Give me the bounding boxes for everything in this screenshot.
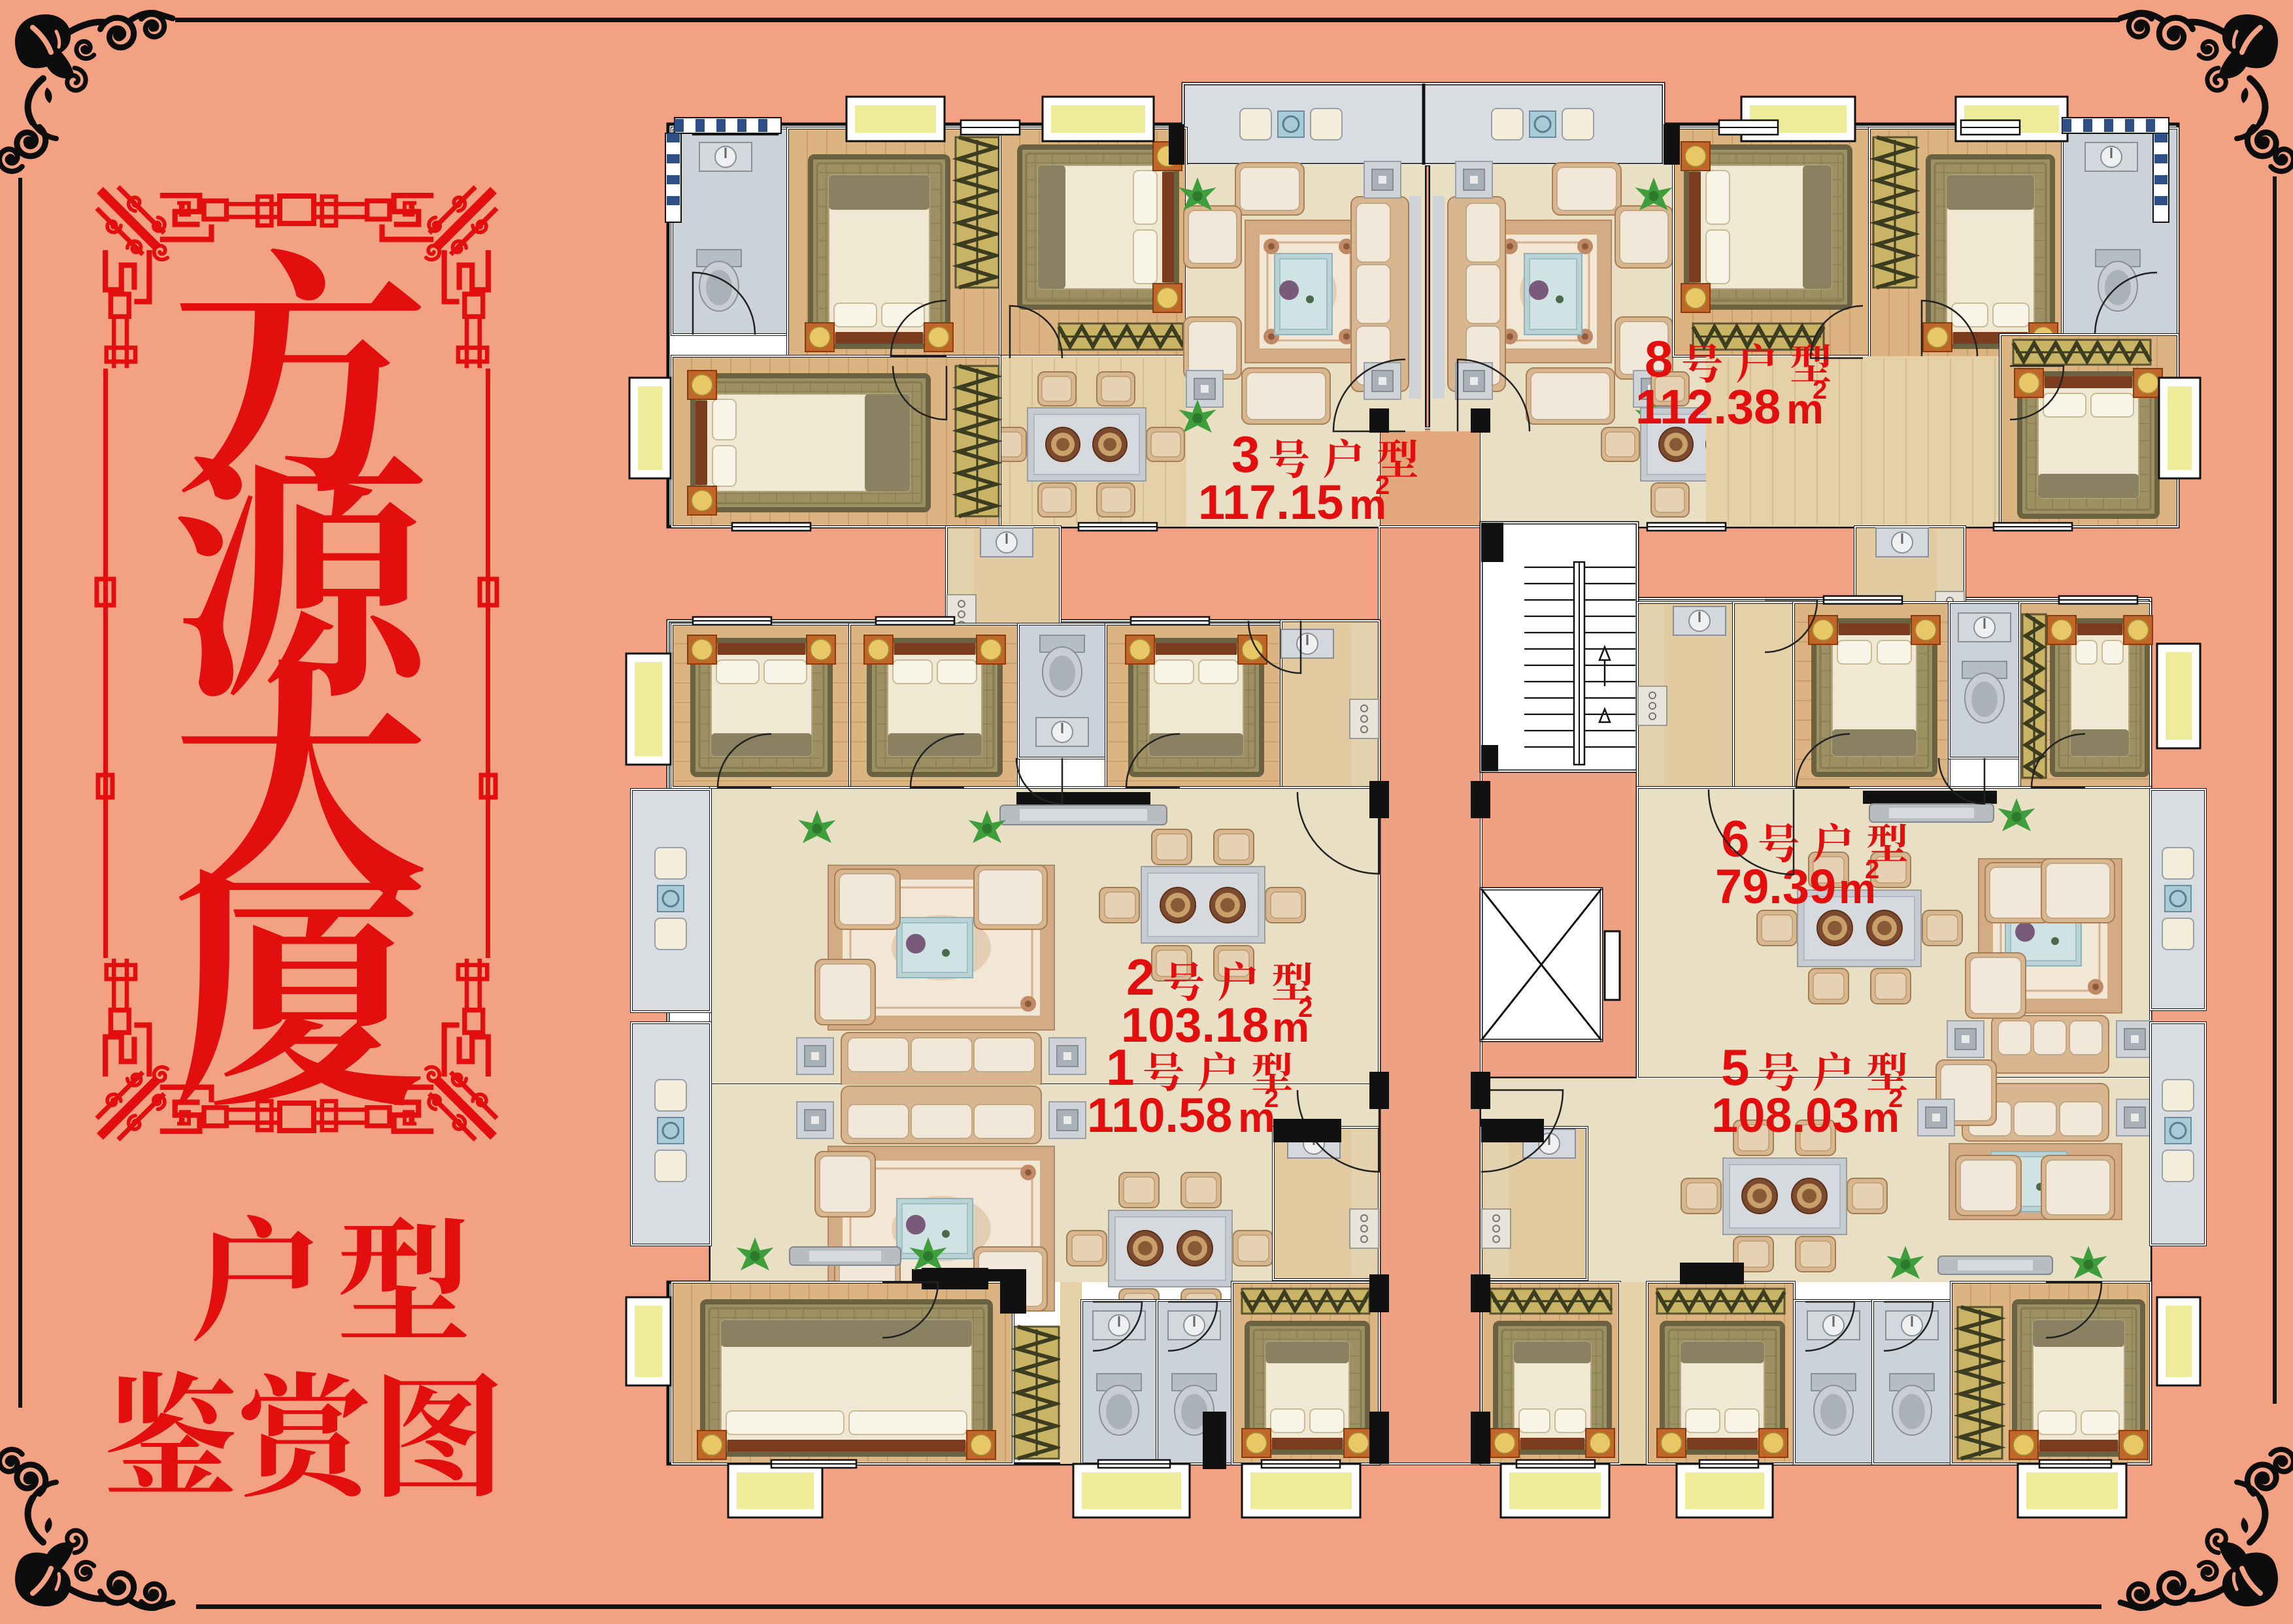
svg-text:110.58: 110.58 (1087, 1088, 1232, 1142)
svg-text:3: 3 (1231, 425, 1260, 483)
svg-text:112.38: 112.38 (1635, 380, 1781, 434)
svg-text:5: 5 (1721, 1038, 1749, 1096)
svg-text:79.39: 79.39 (1715, 859, 1836, 914)
svg-text:8: 8 (1645, 330, 1673, 388)
svg-text:2: 2 (1888, 1084, 1903, 1113)
svg-text:2: 2 (1264, 1084, 1279, 1113)
svg-text:117.15: 117.15 (1198, 475, 1343, 529)
svg-text:108.03: 108.03 (1711, 1088, 1859, 1142)
svg-text:2: 2 (1865, 855, 1879, 884)
svg-text:2: 2 (1298, 994, 1313, 1023)
svg-text:103.18: 103.18 (1121, 998, 1269, 1052)
svg-text:2: 2 (1126, 948, 1154, 1006)
svg-text:2: 2 (1375, 471, 1390, 500)
svg-text:2: 2 (1813, 376, 1827, 405)
svg-text:1: 1 (1106, 1038, 1134, 1096)
